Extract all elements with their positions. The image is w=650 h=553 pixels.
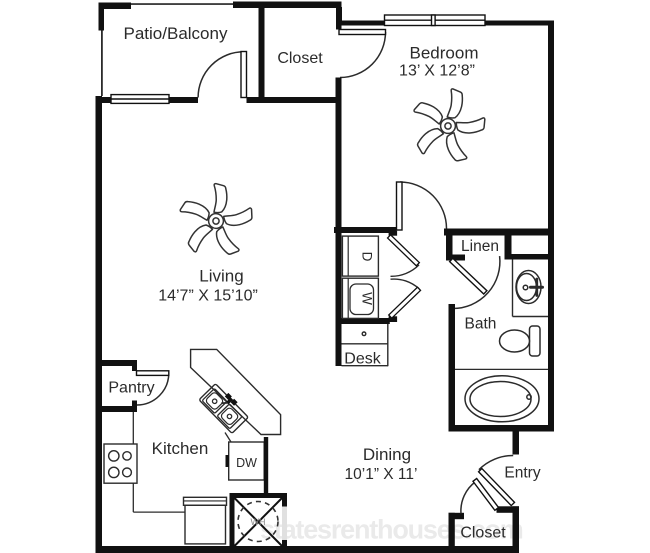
svg-text:13’ X 12’8”: 13’ X 12’8” [399,63,475,80]
svg-text:Entry: Entry [504,465,540,482]
svg-text:Linen: Linen [461,238,499,255]
svg-text:Living: Living [199,267,243,286]
svg-text:Desk: Desk [344,351,381,368]
svg-text:Closet: Closet [460,525,506,542]
svg-text:WH: WH [251,517,266,527]
svg-text:DW: DW [236,456,257,470]
svg-text:Kitchen: Kitchen [152,439,209,458]
svg-text:Dining: Dining [363,445,411,464]
svg-text:Patio/Balcony: Patio/Balcony [124,24,228,43]
svg-text:14’7” X 15’10”: 14’7” X 15’10” [158,288,258,305]
svg-text:D: D [360,252,375,262]
svg-text:10’1” X 11’: 10’1” X 11’ [345,466,418,483]
svg-text:Bath: Bath [465,316,497,333]
svg-text:Pantry: Pantry [108,380,154,397]
svg-text:W: W [360,292,375,305]
svg-text:Bedroom: Bedroom [410,44,479,63]
svg-text:Closet: Closet [277,50,323,67]
